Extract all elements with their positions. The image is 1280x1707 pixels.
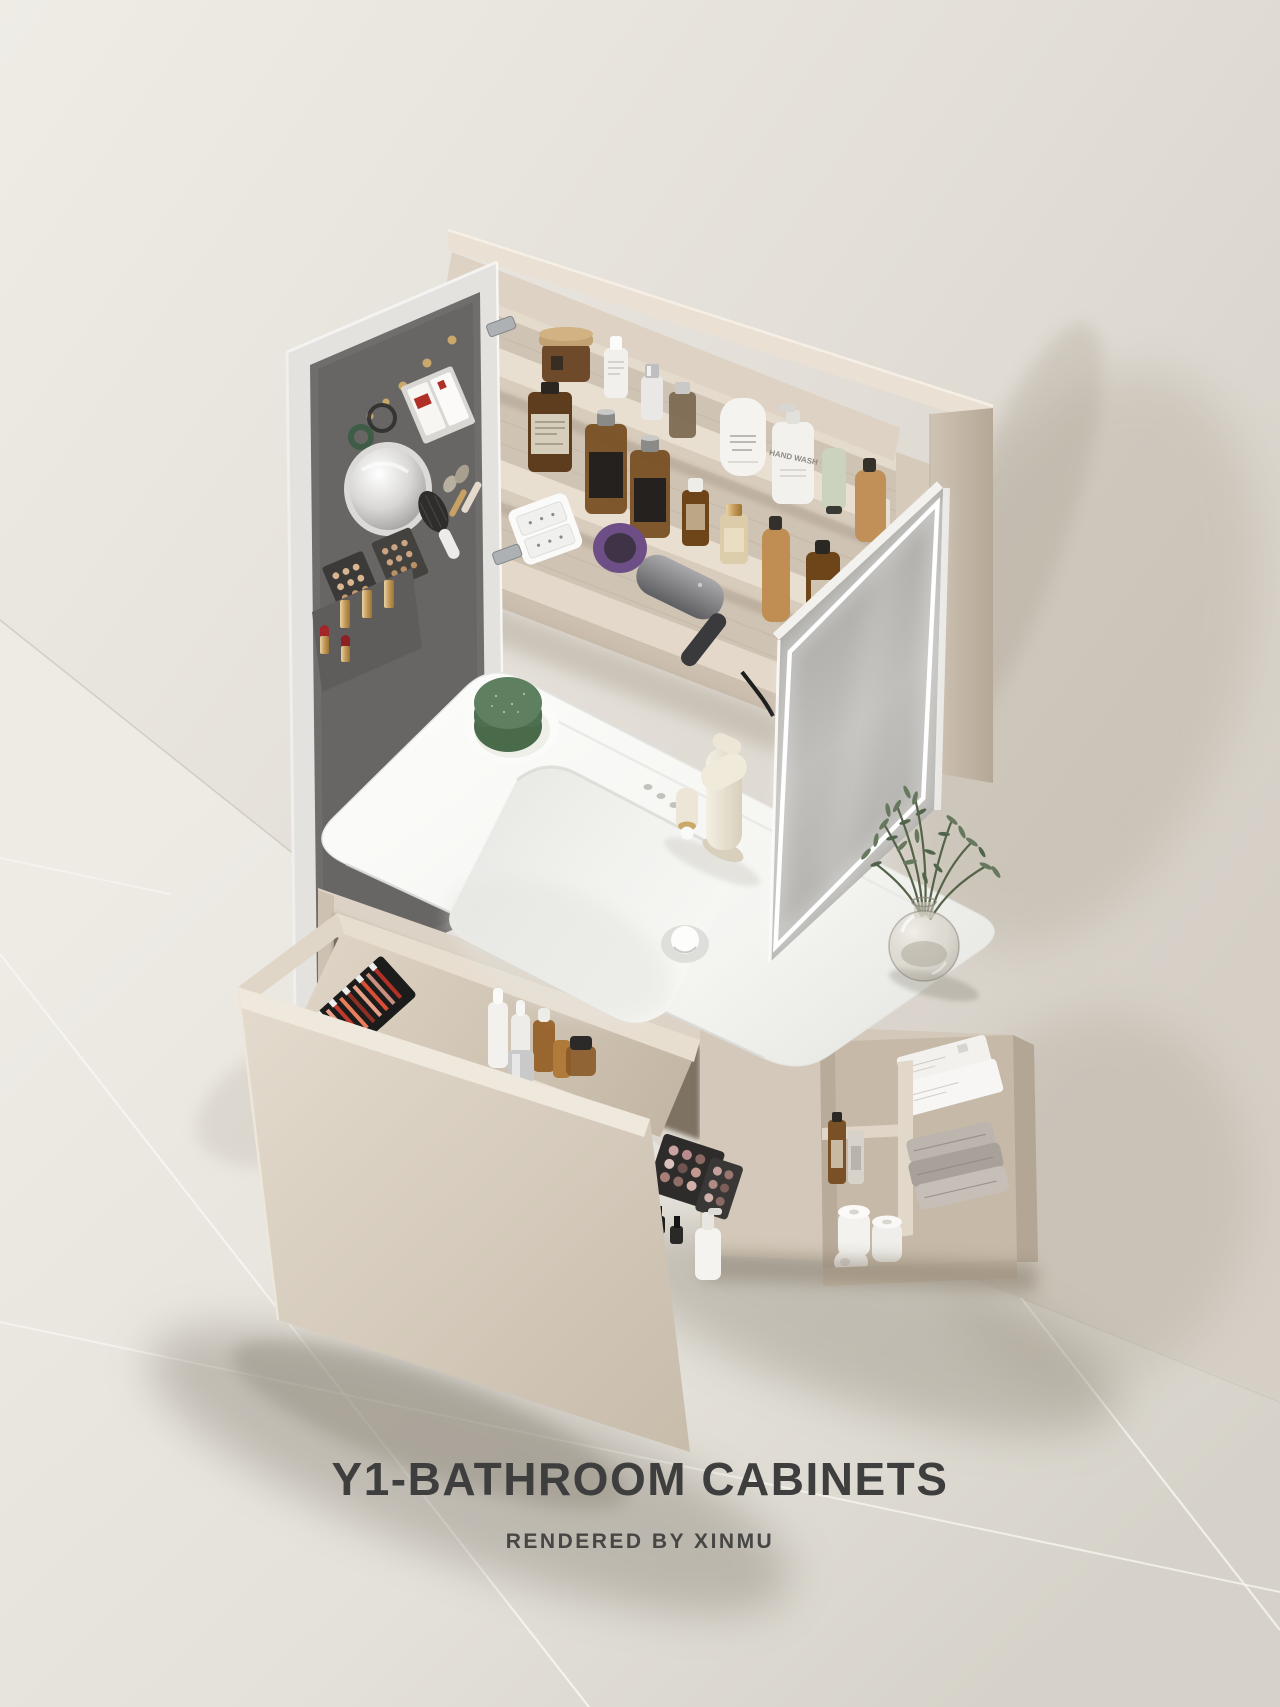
black-label-bottle [585, 409, 627, 514]
vanity-right-side-panel [1013, 1035, 1038, 1262]
open-shelf-niche [820, 1033, 1017, 1286]
bathroom-scene: HAND WASH [0, 0, 1280, 1707]
black-label-bottle [630, 435, 670, 538]
vase-water [901, 941, 947, 967]
black-cap-jar [566, 1036, 596, 1076]
round-mirror [344, 442, 432, 536]
wood-lid-jar [539, 327, 593, 382]
labruket-amber-bottle [528, 382, 572, 472]
poster-render: HAND WASH [0, 0, 1280, 1707]
drain-cover [661, 925, 709, 963]
herb-lotion-bottle [720, 398, 766, 476]
sage-tube [822, 448, 846, 514]
faucet-aerator [681, 827, 694, 840]
tan-cylinder-bottle [762, 516, 790, 622]
